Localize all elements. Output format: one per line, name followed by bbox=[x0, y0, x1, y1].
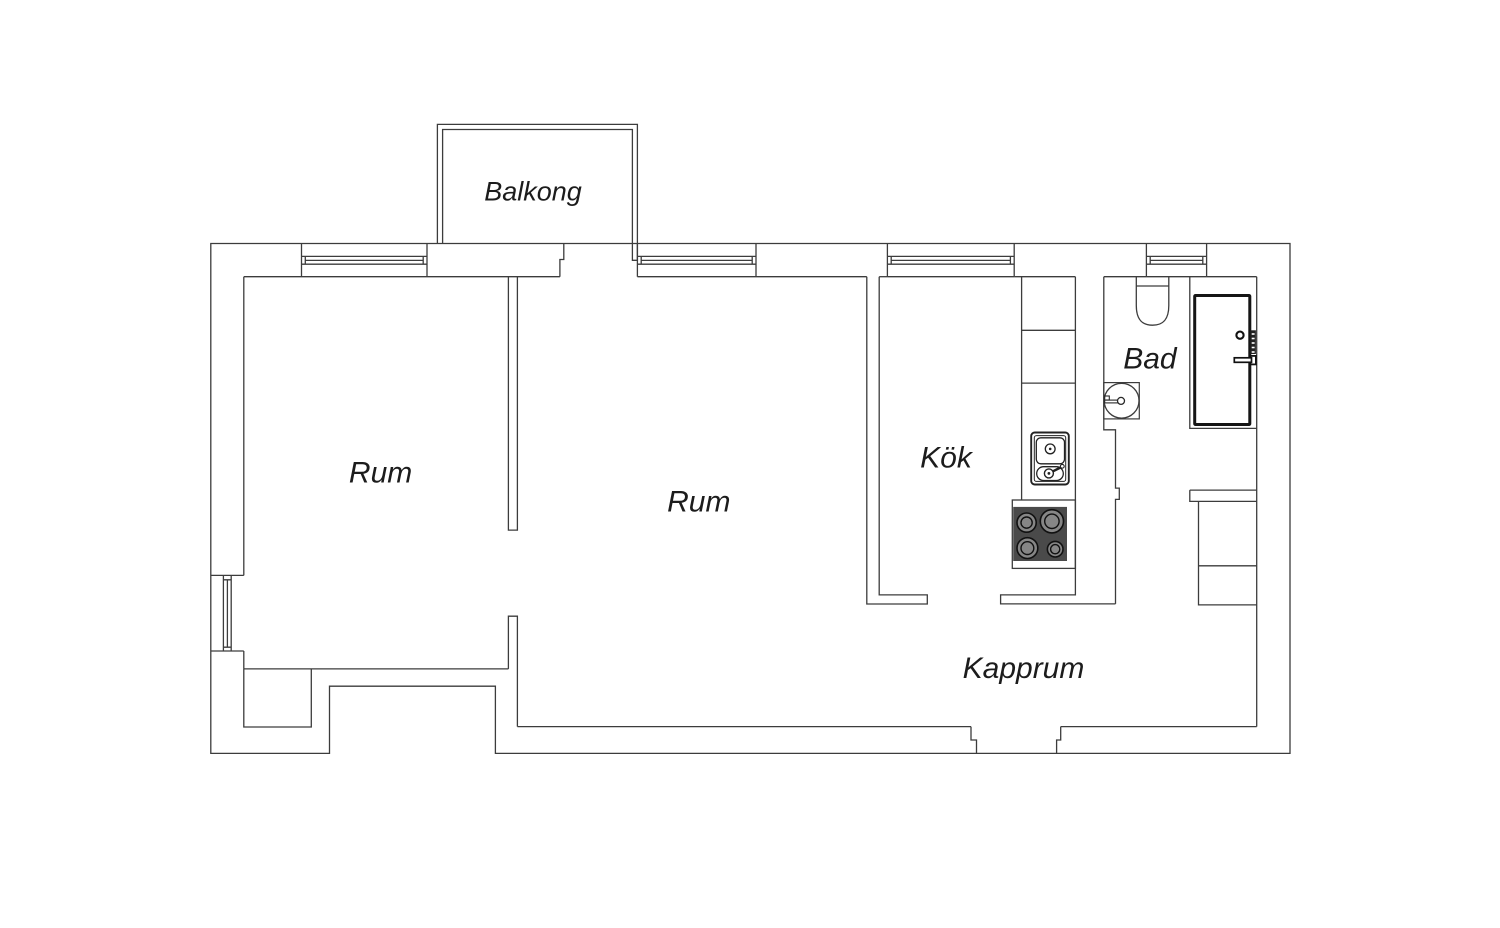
svg-text:Kapprum: Kapprum bbox=[963, 652, 1085, 685]
svg-text:Balkong: Balkong bbox=[484, 177, 582, 207]
svg-text:Bad: Bad bbox=[1123, 342, 1178, 375]
svg-text:Rum: Rum bbox=[349, 457, 412, 490]
svg-text:Kök: Kök bbox=[920, 442, 974, 475]
svg-text:Rum: Rum bbox=[667, 486, 730, 519]
